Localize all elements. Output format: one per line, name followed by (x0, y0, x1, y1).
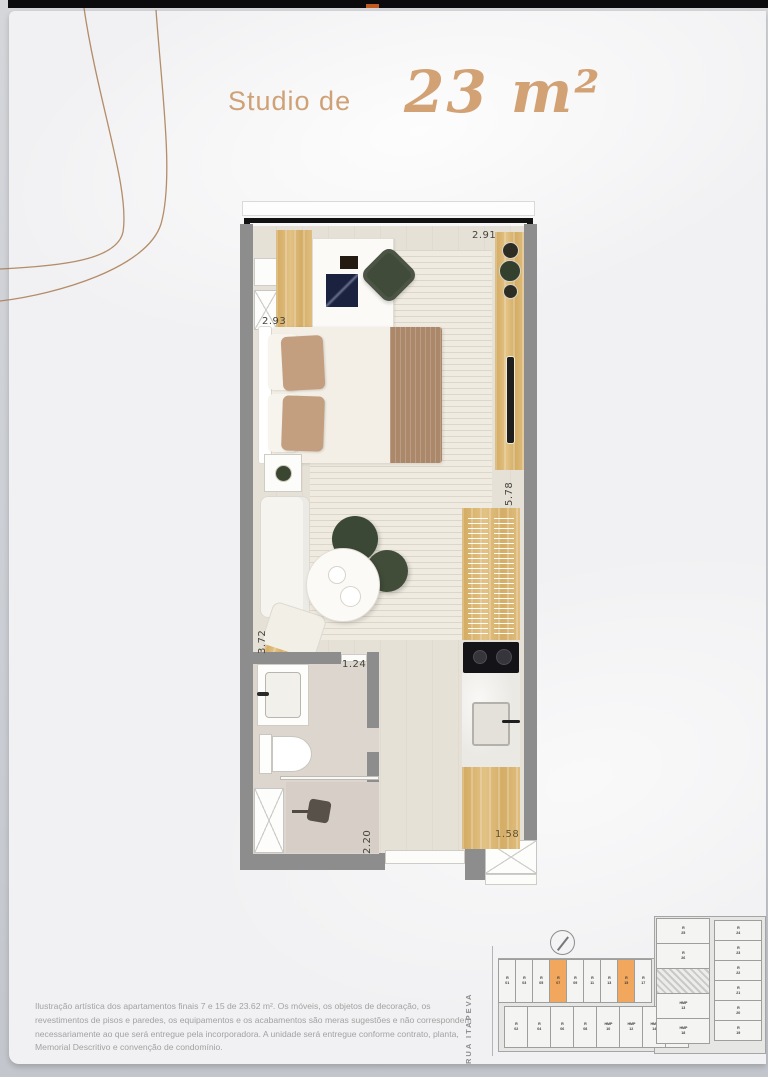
top-bar-accent-mark (366, 4, 379, 8)
keyplan-unit: HMP12 (619, 1006, 643, 1048)
laundry-shelf (254, 258, 278, 286)
keyplan-unit: R23 (714, 940, 762, 961)
kitchen-sink (472, 702, 510, 746)
bed-blanket (390, 327, 442, 463)
keyplan-wing-right-column: R24R23R22R21R20R19 (715, 921, 762, 1041)
floor-plan: 2.91 2.93 5.78 3.72 1.24 2.20 1.58 (240, 196, 537, 888)
bath-faucet (257, 692, 269, 696)
keyplan-unit: R21 (714, 980, 762, 1001)
top-black-bar (8, 0, 768, 8)
keyplan-unit: R01 (498, 959, 516, 1003)
dim-kitchen-width: 1.58 (495, 829, 519, 840)
compass-icon (550, 930, 575, 955)
keyplan-unit: R24 (714, 920, 762, 941)
keyplan-unit: R08 (573, 1006, 597, 1048)
keyplan-unit: R07 (549, 959, 567, 1003)
decor-plate-1 (502, 242, 519, 259)
toilet-tank (259, 734, 272, 774)
keyplan: RUA ITAPEVA R01R03R05R07R09R11R13R15R17 … (468, 910, 768, 1072)
wall-right (524, 224, 537, 842)
keyplan-core (656, 968, 710, 994)
keyplan-top-row: R01R03R05R07R09R11R13R15R17 (499, 960, 652, 1003)
keyplan-unit: R19 (714, 1020, 762, 1041)
tv (326, 274, 358, 307)
decor-plant (499, 260, 521, 282)
dim-sofa-wall: 3.72 (257, 630, 268, 654)
round-table (306, 548, 380, 622)
wall-entry-stub (465, 846, 485, 880)
dish-rack-left (468, 514, 488, 634)
toilet-bowl (272, 736, 312, 772)
burner-2 (496, 649, 512, 665)
keyplan-unit: R25 (656, 918, 710, 944)
media-box (340, 256, 358, 269)
keyplan-unit: R15 (617, 959, 635, 1003)
brochure-page: Studio de 23 m² (0, 0, 768, 1077)
dim-bed-wall: 2.93 (262, 316, 286, 327)
burner-1 (473, 650, 487, 664)
decorative-curves (0, 8, 260, 308)
kitchen-faucet (502, 720, 520, 723)
balcony-rail (242, 201, 535, 216)
dim-bath-door: 1.24 (342, 659, 366, 670)
sideboard-slot (506, 356, 515, 444)
wall-bottom (240, 853, 385, 870)
keyplan-unit: R05 (532, 959, 550, 1003)
keyplan-unit: R13 (600, 959, 618, 1003)
keyplan-unit: R04 (527, 1006, 551, 1048)
sofa (260, 496, 310, 618)
table-plate-1 (328, 566, 346, 584)
shaft (254, 788, 284, 853)
street-label: RUA ITAPEVA (464, 948, 473, 1064)
bathroom-wall-right-upper (367, 652, 379, 728)
keyplan-unit: R03 (515, 959, 533, 1003)
wall-left (240, 224, 253, 870)
dish-rack-right (494, 514, 514, 634)
bath-sink-basin (265, 672, 301, 718)
dim-living-depth: 5.78 (504, 482, 515, 506)
keyplan-unit: R09 (566, 959, 584, 1003)
keyplan-unit: R02 (504, 1006, 528, 1048)
keyplan-unit: R11 (583, 959, 601, 1003)
keyplan-unit: HMP13 (656, 993, 710, 1019)
keyplan-unit: R26 (656, 943, 710, 969)
keyplan-wing-left-column: R25R26HMP13HMP18 (657, 919, 710, 1044)
decor-plate-2 (503, 284, 518, 299)
disclaimer-text: Ilustração artística dos apartamentos fi… (35, 1000, 483, 1055)
hall-step (485, 874, 537, 885)
shower-glass (280, 776, 379, 780)
plan-title-prefix: Studio de (228, 86, 351, 117)
keyplan-unit: R06 (550, 1006, 574, 1048)
wardrobe (276, 230, 312, 330)
table-plate-2 (340, 586, 361, 607)
keyplan-unit: R22 (714, 960, 762, 981)
keyplan-unit: HMP18 (656, 1018, 710, 1044)
window-bar (244, 218, 533, 223)
keyplan-unit: R17 (634, 959, 652, 1003)
entry-door (385, 850, 465, 864)
dim-shower-depth: 2.20 (362, 830, 373, 854)
keyplan-unit: HMP10 (596, 1006, 620, 1048)
plan-title-area: 23 m² (404, 58, 602, 126)
pillow-brown-1 (281, 335, 326, 391)
keyplan-unit: R20 (714, 1000, 762, 1021)
street-line (492, 946, 493, 1056)
dim-window-width: 2.91 (472, 230, 496, 241)
compass-needle (557, 936, 569, 950)
plant (275, 465, 292, 482)
pillow-brown-2 (281, 395, 325, 451)
shower-head (306, 798, 331, 823)
